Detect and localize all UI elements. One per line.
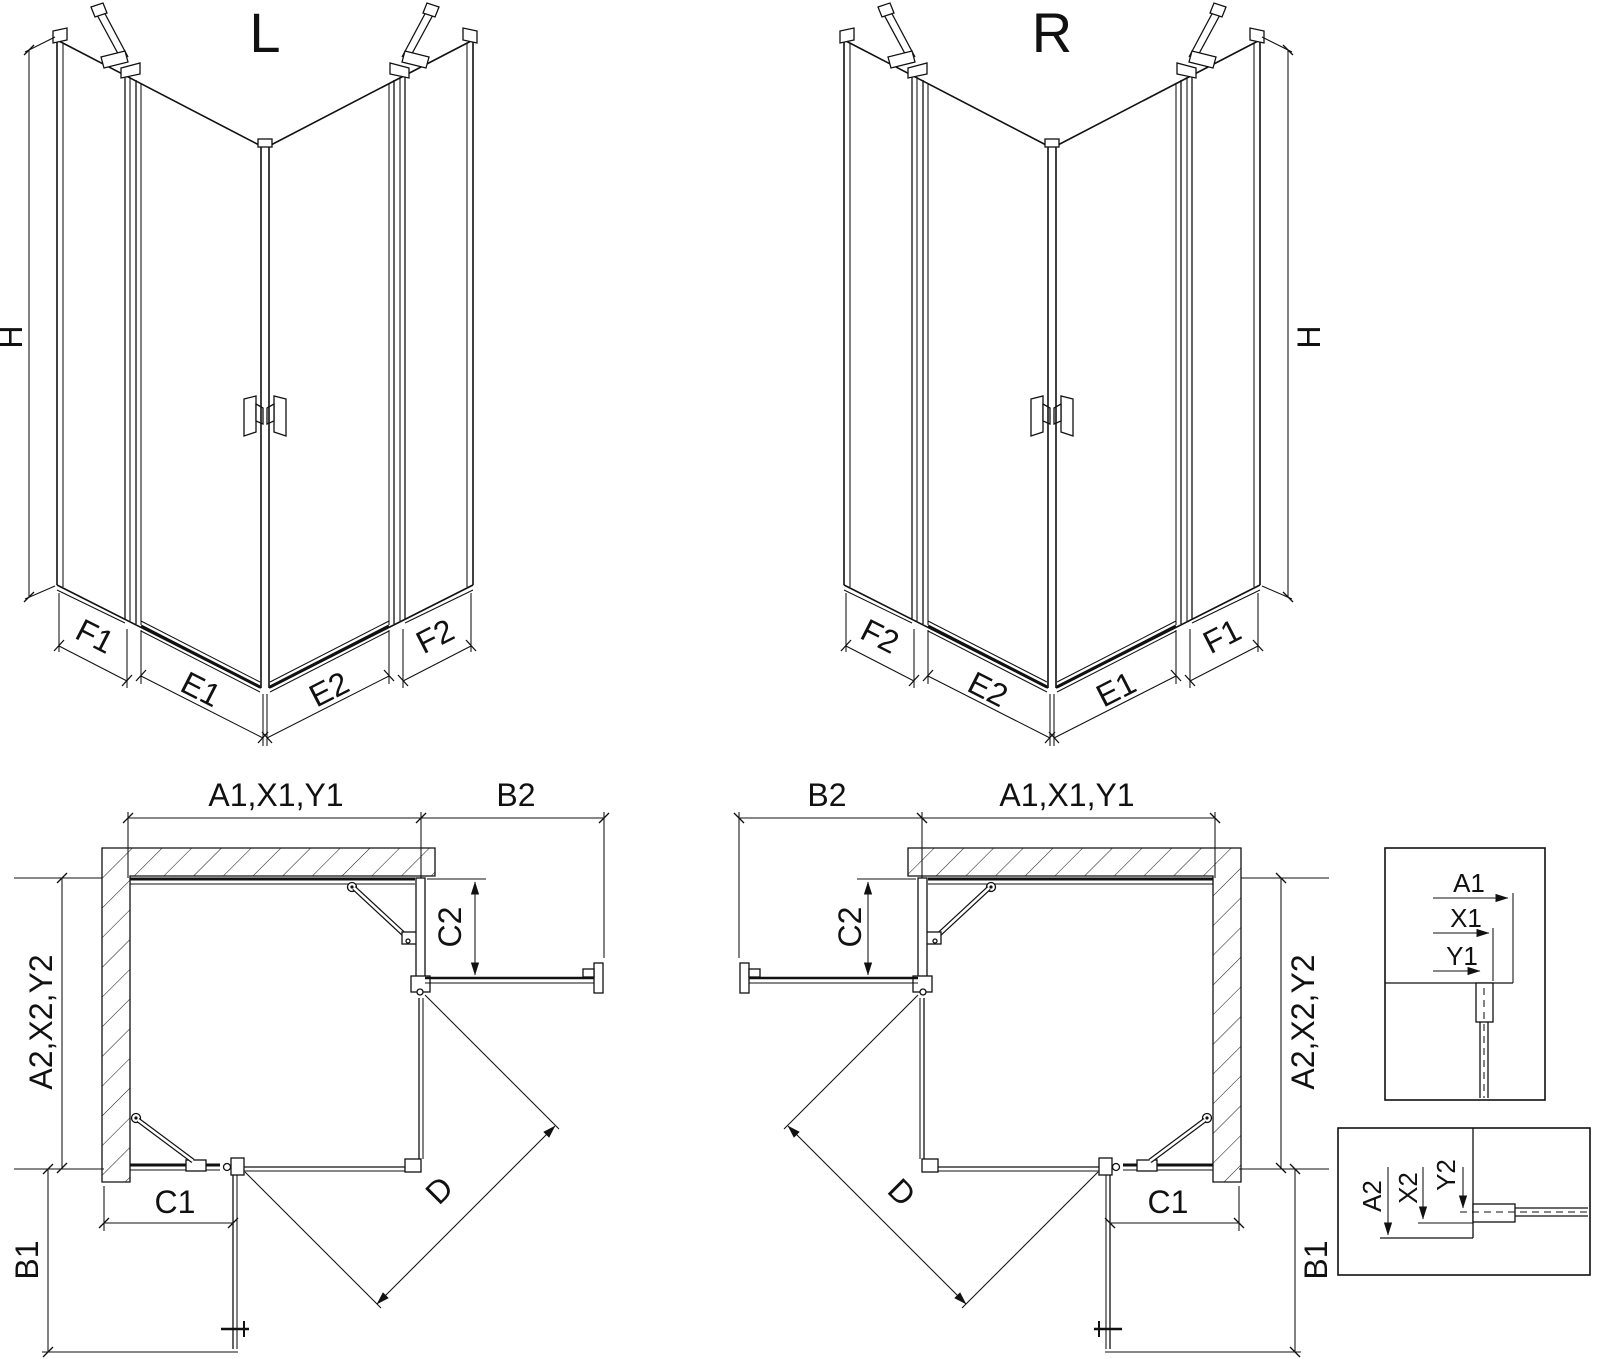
labels: L H F1 E1 E2 F2 R H F2 E2 E1 F1 A1,X1,Y1… xyxy=(0,1,1485,1280)
plan-right-a1-label: A1,X1,Y1 xyxy=(999,777,1134,813)
iso-left-f2-label: F2 xyxy=(410,612,460,661)
plan-right-b1-label: B1 xyxy=(1298,1240,1334,1279)
iso-left-h-label: H xyxy=(0,325,29,348)
detail-bottom-a2-label: A2 xyxy=(1357,1180,1387,1212)
plan-view-right xyxy=(734,812,1329,1357)
detail-bottom-y2-label: Y2 xyxy=(1431,1159,1461,1191)
plan-left-a1-label: A1,X1,Y1 xyxy=(208,777,343,813)
plan-right-c1-label: C1 xyxy=(1148,1184,1189,1220)
plan-left-d-label: D xyxy=(418,1169,460,1211)
plan-view-left xyxy=(14,812,609,1357)
plan-left-b1-label: B1 xyxy=(9,1240,45,1279)
iso-right-e1-label: E1 xyxy=(1090,664,1141,714)
iso-left-e1-label: E1 xyxy=(175,664,226,714)
iso-left-title: L xyxy=(249,1,280,64)
iso-right-h-label: H xyxy=(1291,325,1327,348)
iso-right-e2-label: E2 xyxy=(962,664,1013,714)
plan-right-b2-label: B2 xyxy=(807,777,846,813)
iso-right-title: R xyxy=(1032,1,1072,64)
plan-left-b2-label: B2 xyxy=(496,777,535,813)
shower-enclosure-dimension-diagram: L H F1 E1 E2 F2 R H F2 E2 E1 F1 A1,X1,Y1… xyxy=(0,0,1600,1359)
plan-left-a2-label: A2,X2,Y2 xyxy=(23,954,59,1089)
detail-bottom-x2-label: X2 xyxy=(1393,1172,1423,1204)
detail-top-x1-label: X1 xyxy=(1450,903,1482,933)
iso-right-f1-label: F1 xyxy=(1197,612,1247,661)
plan-right-d-label: D xyxy=(881,1171,923,1213)
plan-left-c2-label: C2 xyxy=(432,907,468,948)
iso-left-f1-label: F1 xyxy=(70,612,120,661)
drawing-canvas: L H F1 E1 E2 F2 R H F2 E2 E1 F1 A1,X1,Y1… xyxy=(0,0,1600,1359)
iso-left-e2-label: E2 xyxy=(303,664,354,714)
detail-top-y1-label: Y1 xyxy=(1446,941,1478,971)
iso-right-f2-label: F2 xyxy=(855,612,905,661)
plan-right-c2-label: C2 xyxy=(832,907,868,948)
detail-top-a1-label: A1 xyxy=(1453,868,1485,898)
plan-right-a2-label: A2,X2,Y2 xyxy=(1285,954,1321,1089)
plan-left-c1-label: C1 xyxy=(155,1184,196,1220)
